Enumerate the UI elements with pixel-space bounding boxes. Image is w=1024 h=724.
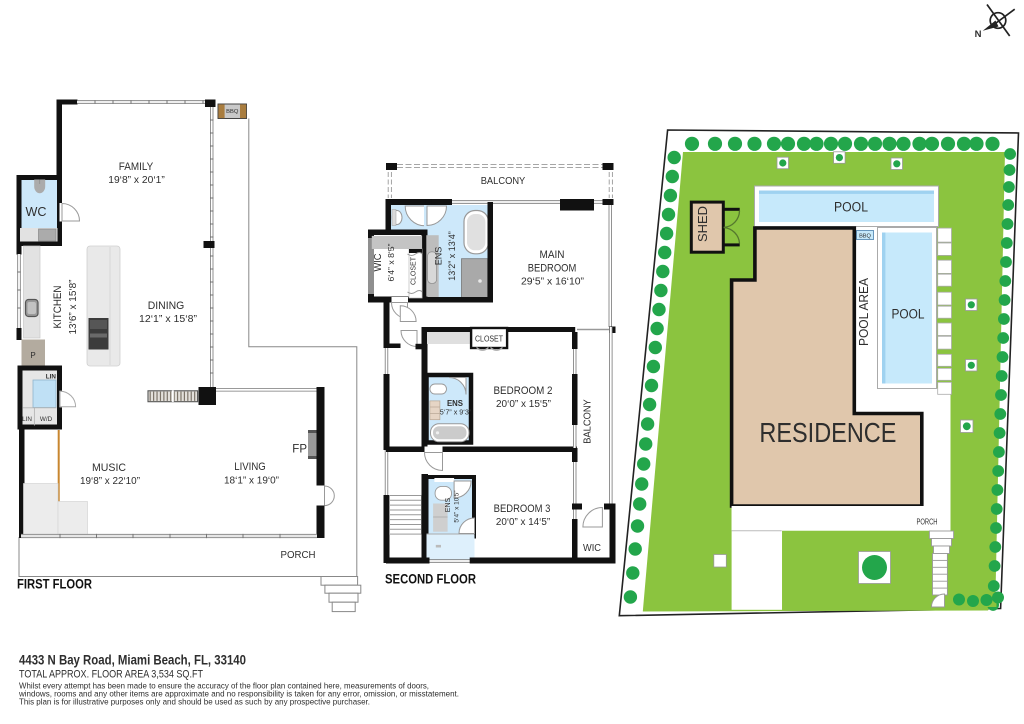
svg-text:FIRST FLOOR: FIRST FLOOR — [17, 577, 92, 592]
svg-text:P: P — [30, 351, 35, 360]
svg-text:PORCH: PORCH — [281, 549, 316, 561]
svg-text:WC: WC — [26, 205, 47, 219]
svg-text:LIN: LIN — [22, 416, 32, 423]
svg-text:KITCHEN: KITCHEN — [52, 285, 64, 328]
svg-text:13‘2” x 13‘4”: 13‘2” x 13‘4” — [447, 231, 457, 281]
svg-text:W/D: W/D — [40, 416, 53, 423]
svg-text:18‘1” x 19‘0”: 18‘1” x 19‘0” — [224, 476, 279, 487]
svg-text:SHED: SHED — [696, 206, 710, 242]
svg-text:BBQ: BBQ — [226, 109, 239, 115]
svg-text:DINING: DINING — [148, 300, 185, 312]
svg-text:20‘0” x 15‘5”: 20‘0” x 15‘5” — [496, 399, 551, 410]
svg-text:4433 N Bay Road, Miami Beach,: 4433 N Bay Road, Miami Beach, FL, 33140 — [19, 652, 246, 668]
svg-text:BBQ: BBQ — [859, 233, 871, 239]
svg-text:BALCONY: BALCONY — [582, 399, 594, 444]
svg-text:CLOSET: CLOSET — [411, 256, 418, 285]
svg-text:POOL AREA: POOL AREA — [856, 278, 871, 346]
svg-text:FAMILY: FAMILY — [119, 161, 154, 173]
svg-text:19‘8” x 22‘10”: 19‘8” x 22‘10” — [80, 476, 140, 487]
svg-text:This plan is for illustrative: This plan is for illustrative purposes o… — [19, 697, 370, 707]
svg-text:5‘7” x 9‘3”: 5‘7” x 9‘3” — [440, 408, 472, 417]
svg-text:CLOSET: CLOSET — [475, 335, 503, 344]
svg-text:12‘1” x 15‘8”: 12‘1” x 15‘8” — [139, 314, 197, 325]
svg-text:ENS: ENS — [434, 247, 444, 266]
svg-text:WIC: WIC — [583, 543, 601, 554]
svg-text:5‘4” x 10‘5”: 5‘4” x 10‘5” — [454, 490, 461, 522]
svg-text:BALCONY: BALCONY — [481, 175, 526, 187]
svg-text:6‘4” x 8‘5”: 6‘4” x 8‘5” — [386, 243, 396, 281]
svg-text:BEDROOM: BEDROOM — [528, 263, 577, 275]
svg-text:ENS: ENS — [445, 497, 452, 512]
svg-text:19‘8” x 20‘1”: 19‘8” x 20‘1” — [108, 175, 165, 186]
svg-text:POOL: POOL — [892, 307, 925, 322]
svg-text:LIVING: LIVING — [234, 461, 266, 473]
svg-text:20‘0” x 14‘5”: 20‘0” x 14‘5” — [496, 517, 550, 528]
svg-text:POOL: POOL — [834, 200, 868, 215]
svg-text:FP: FP — [292, 444, 307, 456]
svg-text:BEDROOM 3: BEDROOM 3 — [494, 503, 551, 515]
svg-text:RESIDENCE: RESIDENCE — [759, 417, 896, 448]
svg-text:PORCH: PORCH — [917, 517, 938, 527]
svg-text:BEDROOM 2: BEDROOM 2 — [494, 385, 553, 397]
svg-text:TOTAL APPROX. FLOOR AREA 3,534: TOTAL APPROX. FLOOR AREA 3,534 SQ.FT — [19, 669, 203, 681]
svg-text:SECOND FLOOR: SECOND FLOOR — [385, 572, 476, 587]
svg-text:LIN: LIN — [46, 373, 57, 380]
svg-text:N: N — [975, 29, 982, 40]
svg-text:29‘5” x 16‘10”: 29‘5” x 16‘10” — [521, 277, 584, 288]
svg-text:WIC: WIC — [373, 254, 384, 272]
svg-text:MUSIC: MUSIC — [92, 462, 126, 474]
svg-text:13‘6” x 15‘8”: 13‘6” x 15‘8” — [68, 280, 79, 335]
svg-text:MAIN: MAIN — [540, 249, 565, 261]
